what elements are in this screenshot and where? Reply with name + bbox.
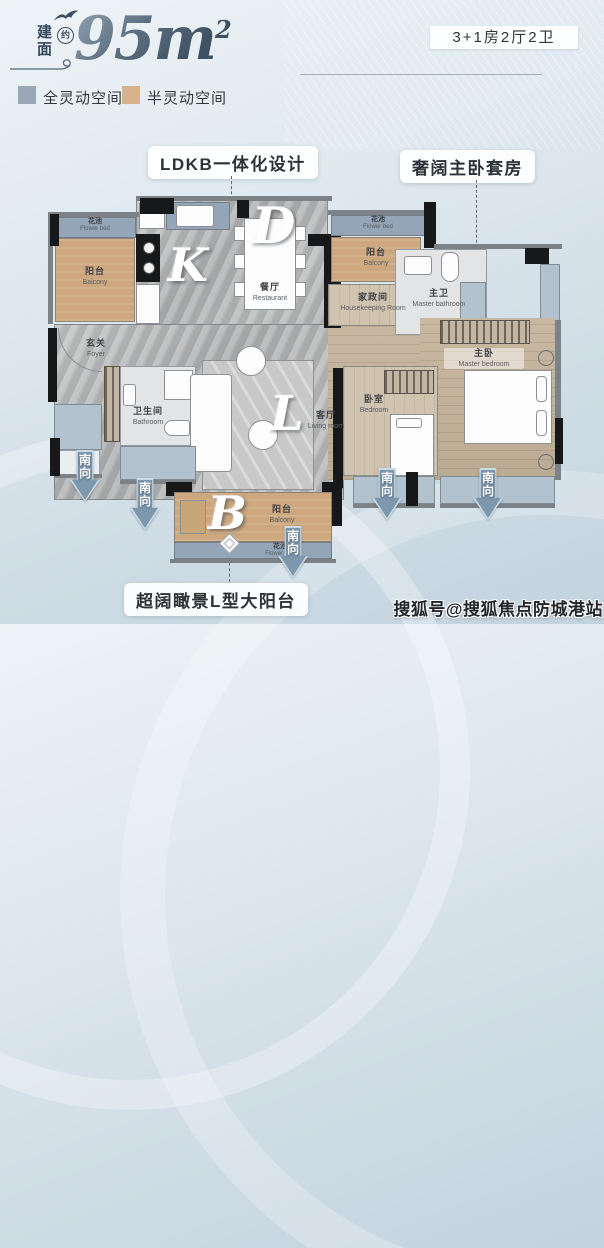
area-superscript: 2 <box>215 15 232 44</box>
letter-dining: D <box>252 196 295 255</box>
ceiling-symbol <box>538 350 554 366</box>
south-arrow: 南向 <box>473 468 503 520</box>
legend-label-half-flex: 半灵动空间 <box>147 87 227 108</box>
callout-master-suite: 奢阔主卧套房 <box>400 150 535 183</box>
watermark: 搜狐号@搜狐焦点防城港站 <box>393 595 603 620</box>
wall <box>333 368 343 488</box>
flower-bed-left <box>53 217 136 238</box>
bathroom-toilet <box>164 420 190 436</box>
south-arrow-label: 南向 <box>139 482 152 508</box>
south-arrow-label: 南向 <box>482 472 495 498</box>
area-prefix-label: 建面 <box>37 24 54 59</box>
dining-chair <box>295 282 306 297</box>
right-bay-window <box>540 264 560 322</box>
kitchen-base-cabinet <box>136 284 160 324</box>
kitchen-sink <box>176 205 214 227</box>
area-approx-circle: 约 <box>57 27 74 44</box>
shower <box>164 370 193 400</box>
south-arrow: 南向 <box>278 526 308 578</box>
pillow <box>536 376 547 402</box>
cloud-swoosh-decoration <box>8 56 80 74</box>
south-arrow: 南向 <box>130 478 160 530</box>
wall <box>140 198 174 214</box>
sofa <box>190 374 232 472</box>
master-wardrobe <box>440 320 530 344</box>
letter-living: L <box>270 386 304 442</box>
hall-cabinet <box>104 366 120 442</box>
wall <box>50 214 59 246</box>
south-arrow-label: 南向 <box>381 472 394 498</box>
area-number: 95m <box>74 4 215 74</box>
south-arrow-label: 南向 <box>287 530 300 556</box>
diagonal-texture <box>284 0 604 150</box>
wall <box>50 438 60 476</box>
pillow <box>536 410 547 436</box>
wall <box>48 328 57 402</box>
ceiling-symbol <box>538 454 554 470</box>
header-divider-line <box>300 74 542 75</box>
bay-window <box>120 446 196 480</box>
wall <box>237 200 249 218</box>
wall <box>525 248 549 264</box>
dining-chair <box>234 254 245 269</box>
planter <box>180 500 206 534</box>
wall <box>170 559 336 563</box>
master-bath-toilet <box>441 252 459 282</box>
pillow <box>396 418 422 428</box>
legend-label-full-flex: 全灵动空间 <box>43 87 123 108</box>
bedroom-wardrobe <box>384 370 434 394</box>
dining-chair <box>234 282 245 297</box>
south-arrow: 南向 <box>372 468 402 520</box>
floor-lamp <box>236 346 266 376</box>
dining-chair <box>295 226 306 241</box>
balcony-left <box>55 238 135 322</box>
area-value: 95m2 <box>74 8 232 71</box>
unit-type-badge: 3+1房2厅2卫 <box>430 26 578 49</box>
dining-chair <box>295 254 306 269</box>
wall <box>424 202 436 248</box>
stove-burner <box>143 242 155 254</box>
stove-burner <box>143 262 155 274</box>
callout-kitchen-design: LDKB一体化设计 <box>148 146 318 179</box>
bathroom-sink <box>123 384 136 406</box>
legend-swatch-full-flex <box>18 86 36 104</box>
legend-swatch-half-flex <box>122 86 140 104</box>
master-bath-sink <box>404 256 432 275</box>
bay-window <box>54 404 102 450</box>
flower-bed-right <box>331 215 425 236</box>
dining-chair <box>234 226 245 241</box>
letter-balcony: B <box>208 486 247 540</box>
foyer-door-arc <box>58 328 102 372</box>
south-arrow: 南向 <box>70 450 100 502</box>
flower-bed-bottom <box>174 542 332 559</box>
south-arrow-label: 南向 <box>79 454 92 480</box>
floor-plan: 花池 Flower bed 阳台 Balcony K D 餐厅 Restaura… <box>40 190 602 588</box>
letter-kitchen: K <box>168 238 208 292</box>
wall <box>406 472 418 506</box>
